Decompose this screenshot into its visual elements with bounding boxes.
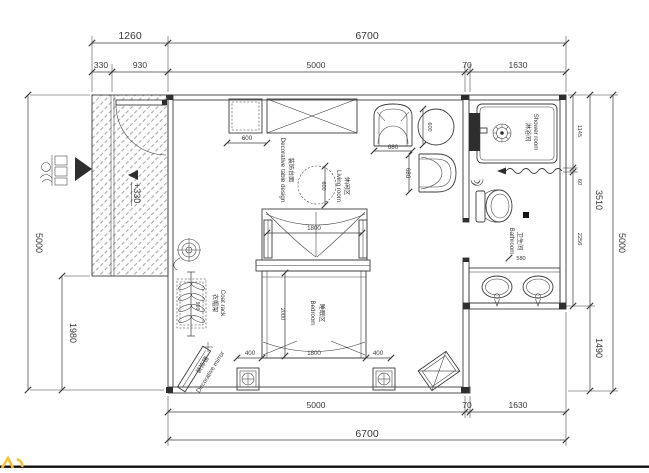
wall-bottom bbox=[168, 387, 470, 393]
wall-cap bbox=[463, 303, 470, 309]
door-hinge bbox=[162, 100, 167, 105]
coat-rack-label-cn: 衣帽架 bbox=[211, 294, 219, 313]
wall-left bbox=[168, 95, 173, 390]
dim-left-1980: 1980 bbox=[68, 323, 78, 343]
shower-label-en: Shower room bbox=[532, 114, 539, 151]
entry-arrow-icon bbox=[75, 157, 92, 181]
living-area: 600 Decorative table design 装饰台面 600 Liv… bbox=[224, 99, 456, 208]
armchair-top bbox=[374, 104, 412, 146]
entry-person bbox=[40, 155, 92, 186]
person-icon bbox=[42, 163, 51, 172]
vanity-dim: 580 bbox=[516, 256, 525, 262]
dim-bottom-6700: 6700 bbox=[355, 428, 379, 440]
wall-bath-bottom bbox=[463, 303, 566, 309]
wall-bath-divider-upper bbox=[463, 95, 469, 222]
canopy-dim: 1800 bbox=[307, 225, 321, 232]
side-table-dim: 600 bbox=[426, 122, 432, 131]
wall-cap bbox=[461, 387, 469, 393]
ceiling-light-icon bbox=[174, 238, 201, 270]
decorative-mirror: 装饰镜 Decorative mirror bbox=[177, 342, 226, 394]
door-jamb bbox=[463, 258, 469, 262]
dim-left-5000: 5000 bbox=[34, 233, 44, 253]
armchair-side bbox=[419, 154, 456, 192]
wall-bath-divider-lower bbox=[463, 258, 469, 393]
dim-top-930: 930 bbox=[133, 60, 147, 70]
dimensions-bottom: 5000 70 1630 6700 bbox=[165, 312, 569, 446]
wall-cap bbox=[559, 303, 566, 309]
shower-room: 淋浴间 Shower room bbox=[469, 104, 562, 175]
shower-label-cn: 淋浴间 bbox=[524, 123, 532, 142]
console-table bbox=[267, 99, 357, 133]
door-jamb bbox=[463, 218, 469, 222]
curtain-arrow-icon bbox=[497, 168, 506, 175]
vanity bbox=[469, 268, 560, 306]
wall-right bbox=[560, 95, 566, 309]
bed-width-dim: 1800 bbox=[307, 350, 321, 357]
cabinet bbox=[229, 99, 262, 133]
armchair-top-dim: 680 bbox=[388, 144, 399, 151]
dim-top-1630: 1630 bbox=[509, 60, 528, 70]
basin-right bbox=[523, 276, 553, 298]
console-label-en: Decorative table design bbox=[279, 138, 286, 203]
dim-bottom-5000: 5000 bbox=[307, 400, 326, 410]
floor-plan-page: +330 bbox=[0, 0, 649, 473]
floor-plan-drawing: +330 bbox=[0, 0, 649, 473]
bed: 2000 Bedroom 睡眠区 bbox=[256, 260, 370, 359]
bedroom-label-en: Bedroom bbox=[309, 300, 316, 325]
wall-cap bbox=[461, 95, 469, 100]
bathroom-label-cn: 卫生间 bbox=[516, 232, 524, 251]
cabinet-dim: 600 bbox=[242, 135, 253, 142]
bed-length-dim: 2000 bbox=[279, 308, 285, 320]
dimensions-top: 1260 6700 330 930 5000 70 1630 bbox=[89, 30, 569, 92]
bed-right-dim: 400 bbox=[373, 350, 384, 357]
coat-rack: 900 衣帽架 Coat rack bbox=[177, 272, 226, 336]
bed-canopy: 1800 bbox=[262, 209, 367, 260]
shower-curtain bbox=[506, 169, 562, 174]
living-label-cn: 休闲区 bbox=[343, 177, 351, 196]
shower-head-icon bbox=[493, 124, 511, 142]
dim-right-2256: 2256 bbox=[576, 233, 582, 245]
dim-top-330: 330 bbox=[94, 60, 108, 70]
dim-top-70: 70 bbox=[462, 60, 472, 70]
dim-top-1260: 1260 bbox=[118, 30, 142, 42]
coat-rack-label-en: Coat rack bbox=[219, 290, 226, 317]
wall-cap bbox=[559, 95, 566, 100]
porch-hatch bbox=[92, 95, 168, 276]
footer-rule bbox=[0, 466, 649, 468]
toilet-paper-icon bbox=[471, 179, 483, 186]
hangers bbox=[178, 281, 206, 324]
dim-bottom-70: 70 bbox=[462, 400, 472, 410]
toilet bbox=[471, 179, 512, 222]
dim-right-60: 60 bbox=[576, 179, 582, 185]
floor-drain bbox=[523, 212, 529, 218]
dim-right-1490: 1490 bbox=[594, 338, 604, 358]
elevation-label: +330 bbox=[132, 183, 142, 203]
bathroom-label-en: Bathroom bbox=[508, 228, 515, 255]
round-table-dim: 600 bbox=[320, 181, 326, 190]
dim-top-5000: 5000 bbox=[307, 60, 326, 70]
armchair-side-dim: 680 bbox=[404, 168, 411, 179]
dim-right-3510: 3510 bbox=[594, 190, 604, 210]
entry-door-leaf bbox=[116, 100, 166, 105]
bedroom-label-cn: 睡眠区 bbox=[318, 304, 326, 323]
dimensions-right: 1145 60 2256 3510 1490 5000 bbox=[563, 92, 627, 394]
dim-right-5000: 5000 bbox=[617, 233, 627, 253]
floor-mirror-crossed bbox=[418, 351, 460, 390]
basin-left bbox=[482, 276, 512, 298]
bed-area: 1800 2000 Bedroom 睡眠区 400 1800 400 bbox=[234, 209, 460, 391]
living-label-en: Living room bbox=[335, 170, 342, 202]
dim-bottom-1630: 1630 bbox=[509, 400, 528, 410]
dim-top-6700: 6700 bbox=[355, 30, 379, 42]
footer bbox=[0, 458, 649, 468]
dim-right-1145: 1145 bbox=[576, 125, 582, 137]
coat-rack-dim: 900 bbox=[194, 302, 200, 311]
wall-cap bbox=[166, 387, 173, 393]
bed-left-dim: 400 bbox=[245, 350, 256, 357]
console-label-cn: 装饰台面 bbox=[287, 158, 295, 183]
wall-top bbox=[168, 95, 566, 100]
side-table bbox=[418, 109, 454, 145]
wardrobe-area: 900 衣帽架 Coat rack 装饰镜 Decorative mirror bbox=[174, 238, 227, 394]
round-table bbox=[298, 166, 336, 204]
entry-porch: +330 bbox=[92, 95, 168, 276]
bathroom-area: 淋浴间 Shower room Bathroom 卫生间 580 bbox=[469, 104, 562, 306]
shower-fixture bbox=[469, 113, 480, 151]
